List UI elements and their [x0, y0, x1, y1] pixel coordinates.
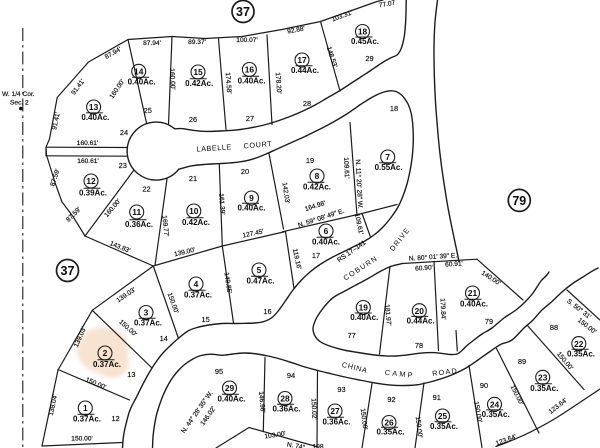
svg-text:179.84': 179.84': [438, 298, 446, 320]
svg-text:0.44Ac.: 0.44Ac.: [291, 66, 319, 75]
svg-text:161.39': 161.39': [217, 193, 225, 215]
svg-text:W. 1/4 Cor.: W. 1/4 Cor.: [2, 91, 35, 98]
svg-text:29: 29: [225, 383, 235, 393]
svg-text:89: 89: [518, 357, 526, 366]
svg-text:109.61': 109.61': [342, 157, 350, 179]
svg-text:0.35Ac.: 0.35Ac.: [567, 349, 595, 358]
svg-text:14: 14: [160, 334, 168, 343]
svg-text:27: 27: [246, 114, 254, 123]
svg-text:90: 90: [480, 381, 488, 390]
svg-text:21: 21: [189, 174, 197, 183]
svg-text:15: 15: [193, 67, 203, 77]
svg-text:0.40Ac.: 0.40Ac.: [128, 78, 156, 87]
svg-text:15: 15: [201, 315, 209, 324]
svg-text:160.00': 160.00': [168, 68, 176, 90]
svg-text:0.36Ac.: 0.36Ac.: [125, 220, 153, 229]
svg-text:16: 16: [245, 65, 255, 75]
svg-text:0.42Ac.: 0.42Ac.: [182, 218, 210, 227]
svg-text:0.40Ac.: 0.40Ac.: [350, 313, 378, 322]
svg-text:7: 7: [385, 152, 390, 162]
svg-text:26: 26: [189, 115, 197, 124]
svg-text:60.90': 60.90': [415, 264, 433, 272]
svg-text:89.37': 89.37': [188, 39, 206, 46]
svg-text:0.37Ac.: 0.37Ac.: [184, 290, 212, 299]
svg-text:10: 10: [189, 206, 199, 216]
svg-text:18: 18: [358, 27, 368, 37]
svg-text:13: 13: [89, 102, 99, 112]
svg-text:0.42Ac.: 0.42Ac.: [303, 182, 331, 191]
svg-text:17: 17: [297, 55, 307, 65]
svg-text:160.61': 160.61': [77, 140, 98, 147]
svg-text:13: 13: [127, 370, 135, 379]
svg-text:2: 2: [103, 348, 108, 358]
svg-text:Sec. 2: Sec. 2: [10, 100, 29, 107]
svg-text:28: 28: [303, 99, 311, 108]
svg-text:0.40Ac.: 0.40Ac.: [312, 237, 340, 246]
svg-text:9: 9: [249, 193, 254, 203]
svg-text:0.35Ac.: 0.35Ac.: [482, 410, 510, 419]
svg-text:0.40Ac.: 0.40Ac.: [237, 203, 265, 212]
svg-text:79: 79: [512, 194, 526, 208]
svg-text:87.94': 87.94': [143, 40, 161, 47]
svg-text:0.37Ac.: 0.37Ac.: [73, 414, 101, 423]
svg-text:19: 19: [306, 156, 314, 165]
svg-text:23: 23: [538, 373, 548, 383]
svg-text:0.37Ac.: 0.37Ac.: [134, 318, 162, 327]
svg-text:0.40Ac.: 0.40Ac.: [460, 299, 488, 308]
svg-text:23: 23: [119, 161, 127, 170]
svg-text:1: 1: [83, 403, 88, 413]
svg-text:0.44Ac.: 0.44Ac.: [407, 317, 435, 326]
svg-text:16: 16: [263, 307, 271, 316]
svg-text:178.20': 178.20': [274, 72, 282, 94]
svg-text:37: 37: [236, 5, 250, 19]
svg-text:160.61': 160.61': [77, 158, 98, 165]
svg-text:0.47Ac.: 0.47Ac.: [246, 276, 274, 285]
svg-text:0.37Ac.: 0.37Ac.: [93, 360, 121, 369]
svg-text:0.55Ac.: 0.55Ac.: [375, 163, 403, 172]
svg-text:0.40Ac.: 0.40Ac.: [238, 76, 266, 85]
svg-text:0.45Ac.: 0.45Ac.: [351, 37, 379, 46]
svg-text:91: 91: [433, 393, 441, 402]
svg-text:18: 18: [390, 104, 398, 113]
svg-text:25: 25: [144, 106, 152, 115]
svg-text:95: 95: [215, 367, 223, 376]
svg-text:20: 20: [415, 306, 425, 316]
svg-text:88: 88: [550, 323, 558, 332]
svg-text:28: 28: [280, 394, 290, 404]
svg-text:77: 77: [348, 331, 356, 340]
svg-text:0.36Ac.: 0.36Ac.: [322, 417, 350, 426]
svg-text:93: 93: [337, 385, 345, 394]
svg-text:0.39Ac.: 0.39Ac.: [79, 188, 107, 197]
svg-text:25: 25: [438, 411, 448, 421]
svg-text:6: 6: [324, 226, 329, 236]
svg-text:108: 108: [312, 444, 323, 448]
svg-text:12: 12: [86, 176, 96, 186]
svg-text:150.02': 150.02': [309, 398, 317, 420]
svg-text:0.40Ac.: 0.40Ac.: [217, 394, 245, 403]
svg-text:4: 4: [194, 279, 199, 289]
svg-text:0.40Ac.: 0.40Ac.: [81, 113, 109, 122]
svg-text:17: 17: [312, 251, 320, 260]
svg-text:24: 24: [120, 128, 128, 137]
svg-text:12: 12: [111, 414, 119, 423]
svg-text:22: 22: [574, 339, 584, 349]
svg-text:3: 3: [144, 308, 149, 318]
svg-text:11: 11: [132, 207, 141, 217]
svg-text:8: 8: [315, 171, 320, 181]
svg-text:79: 79: [485, 317, 493, 326]
svg-text:22: 22: [142, 185, 150, 194]
svg-text:14: 14: [134, 67, 144, 77]
svg-text:5: 5: [257, 265, 262, 275]
svg-text:19: 19: [359, 303, 369, 313]
svg-text:0.35Ac.: 0.35Ac.: [376, 427, 404, 436]
svg-text:150.00': 150.00': [71, 436, 92, 443]
svg-text:0.36Ac.: 0.36Ac.: [272, 404, 300, 413]
svg-text:27: 27: [330, 406, 340, 416]
svg-text:0.42Ac.: 0.42Ac.: [185, 79, 213, 88]
svg-text:92: 92: [387, 395, 395, 404]
svg-text:100.07': 100.07': [236, 37, 257, 44]
svg-text:29: 29: [365, 54, 373, 63]
svg-text:0.35Ac.: 0.35Ac.: [530, 384, 558, 393]
svg-text:0.35Ac.: 0.35Ac.: [430, 422, 458, 431]
svg-text:60.91': 60.91': [445, 260, 463, 268]
svg-text:26: 26: [384, 418, 394, 428]
svg-text:24: 24: [490, 400, 500, 410]
svg-text:20: 20: [241, 167, 249, 176]
svg-text:94: 94: [287, 371, 295, 380]
svg-text:78: 78: [415, 341, 423, 350]
svg-text:174.58': 174.58': [224, 72, 232, 94]
svg-text:21: 21: [468, 288, 478, 298]
svg-text:37: 37: [61, 264, 75, 278]
